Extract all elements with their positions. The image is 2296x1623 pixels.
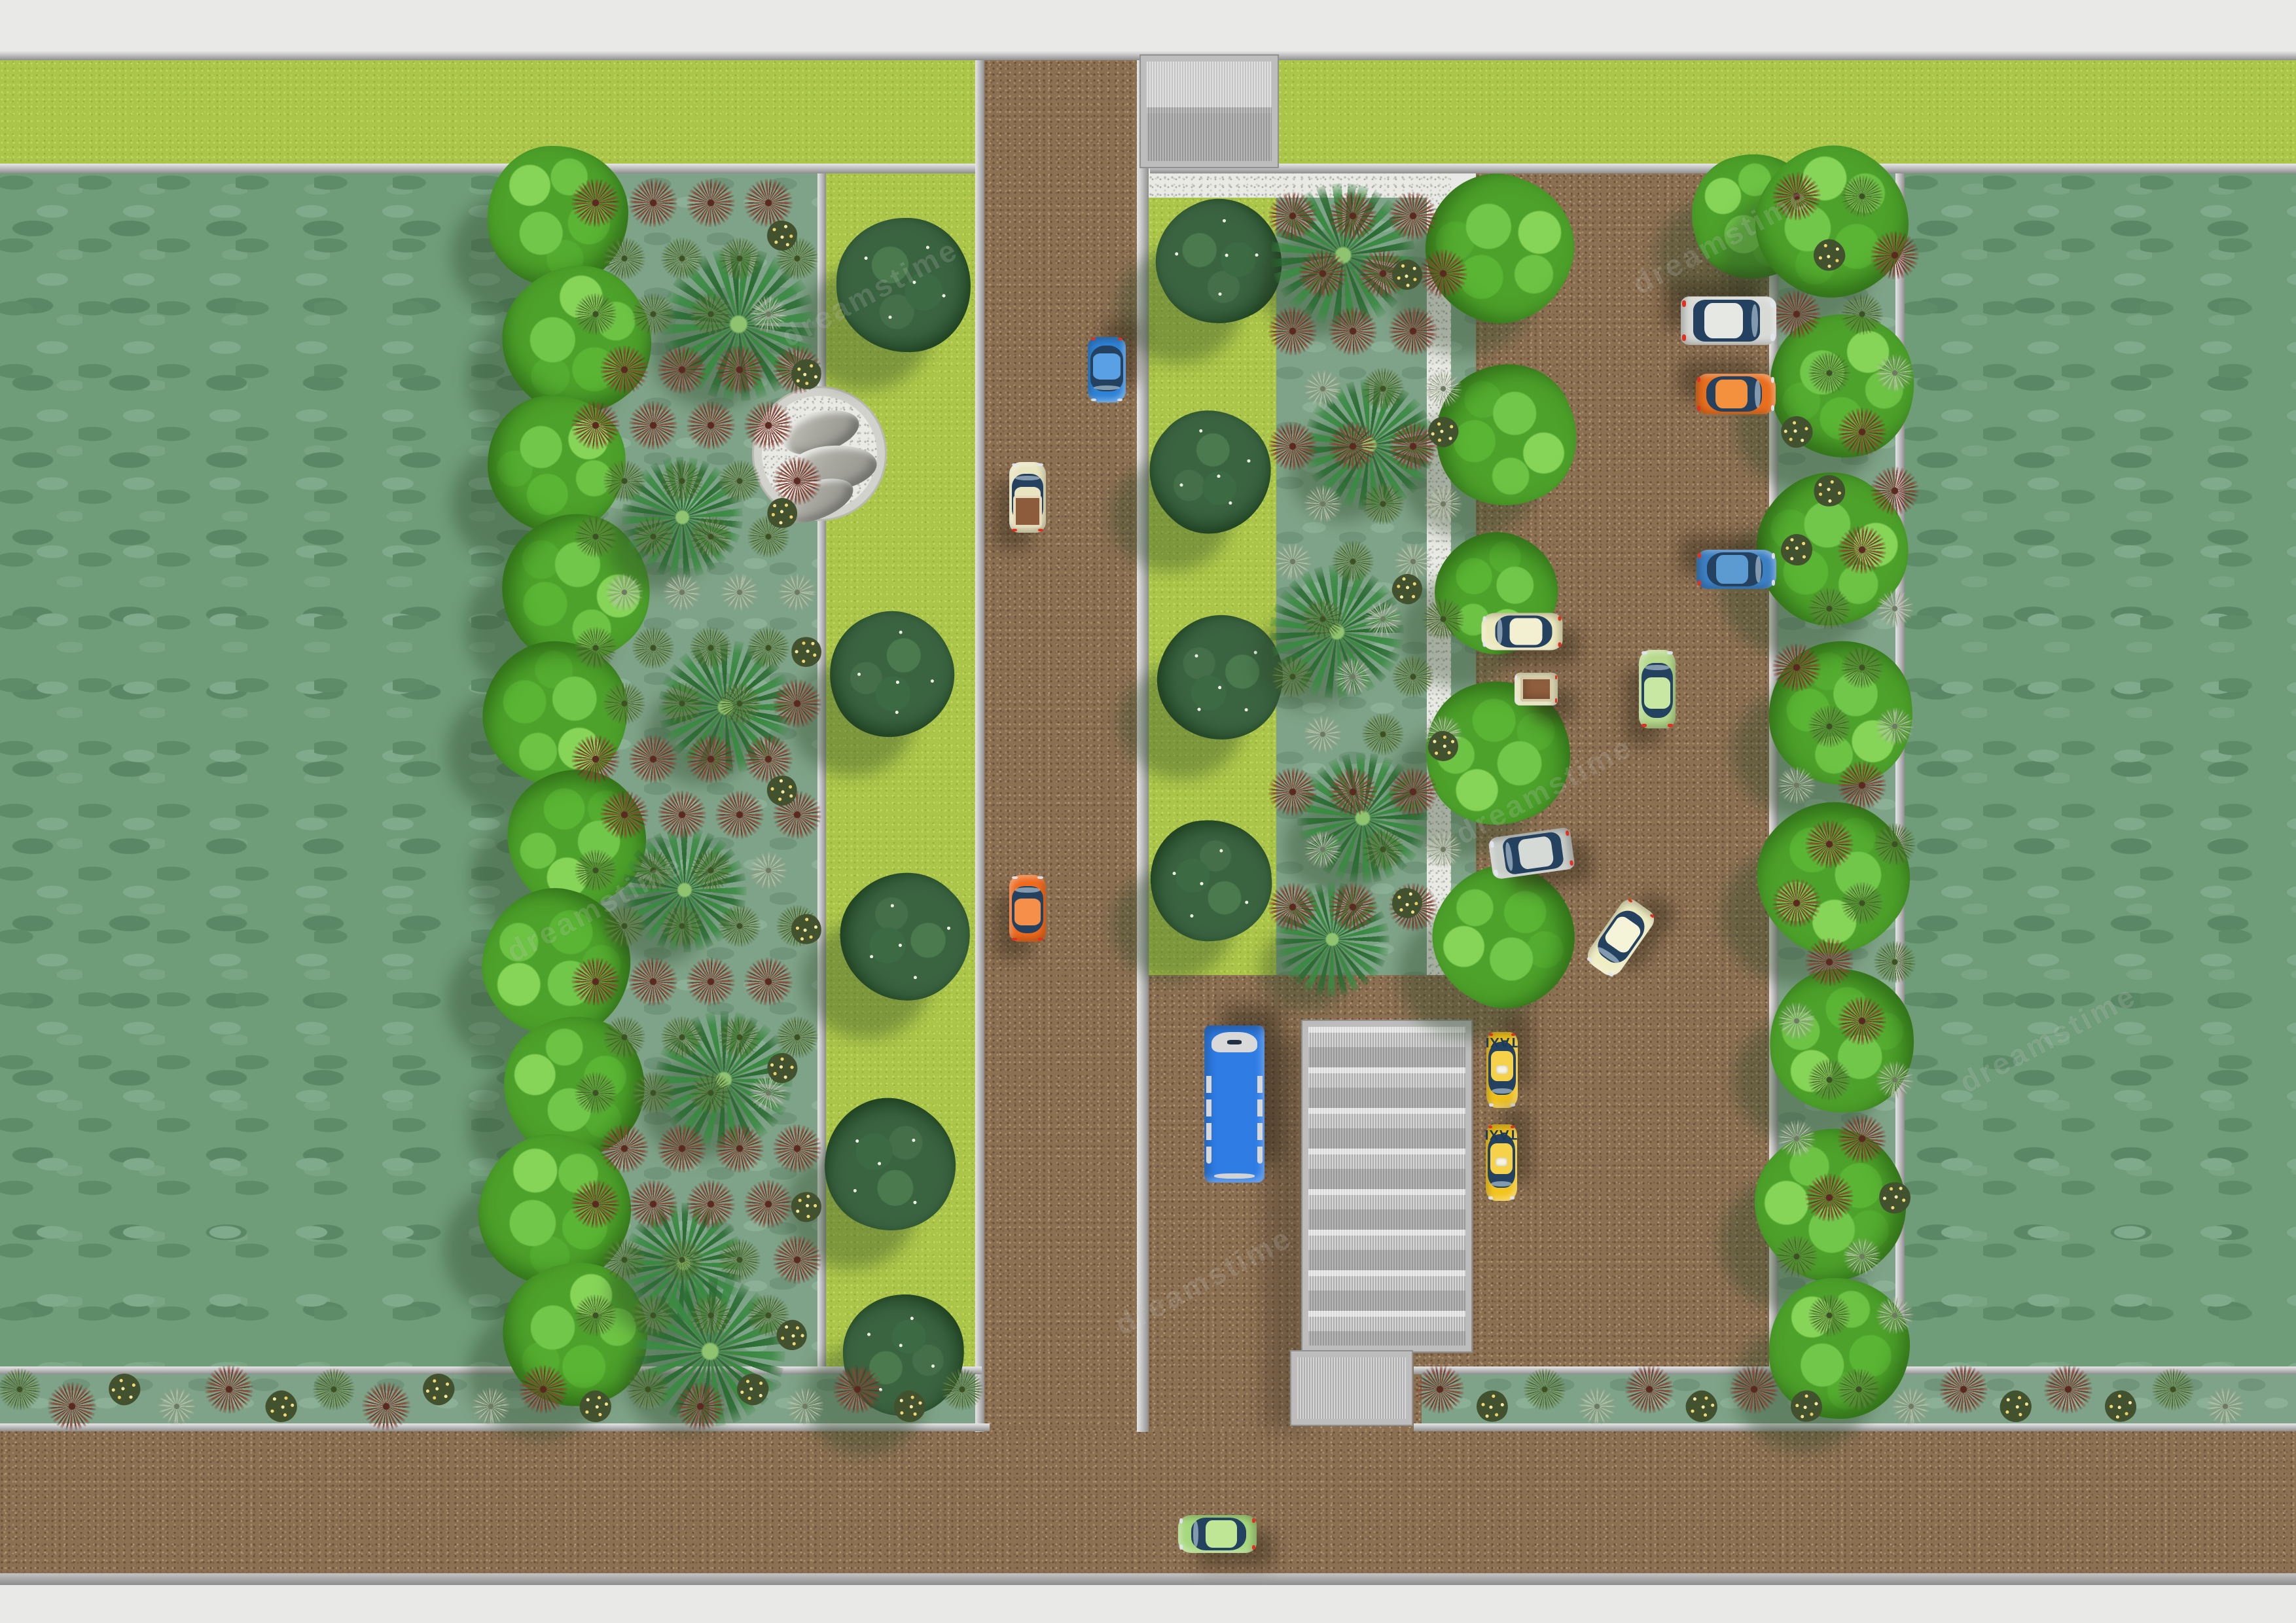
- watermark-text: dreamstime: [1450, 728, 1639, 851]
- watermark-text: dreamstime: [501, 846, 690, 969]
- watermark-text: dreamstime: [1109, 1219, 1299, 1342]
- watermark-text: dreamstime: [1626, 179, 1816, 302]
- watermark-layer: dreamstimedreamstimedreamstimedreamstime…: [0, 0, 2296, 1623]
- watermark-text: dreamstime: [1954, 977, 2143, 1100]
- watermark-text: dreamstime: [776, 231, 965, 354]
- site-plan-canvas: TAXITAXI dreamstimedreamstimedreamstimed…: [0, 0, 2296, 1623]
